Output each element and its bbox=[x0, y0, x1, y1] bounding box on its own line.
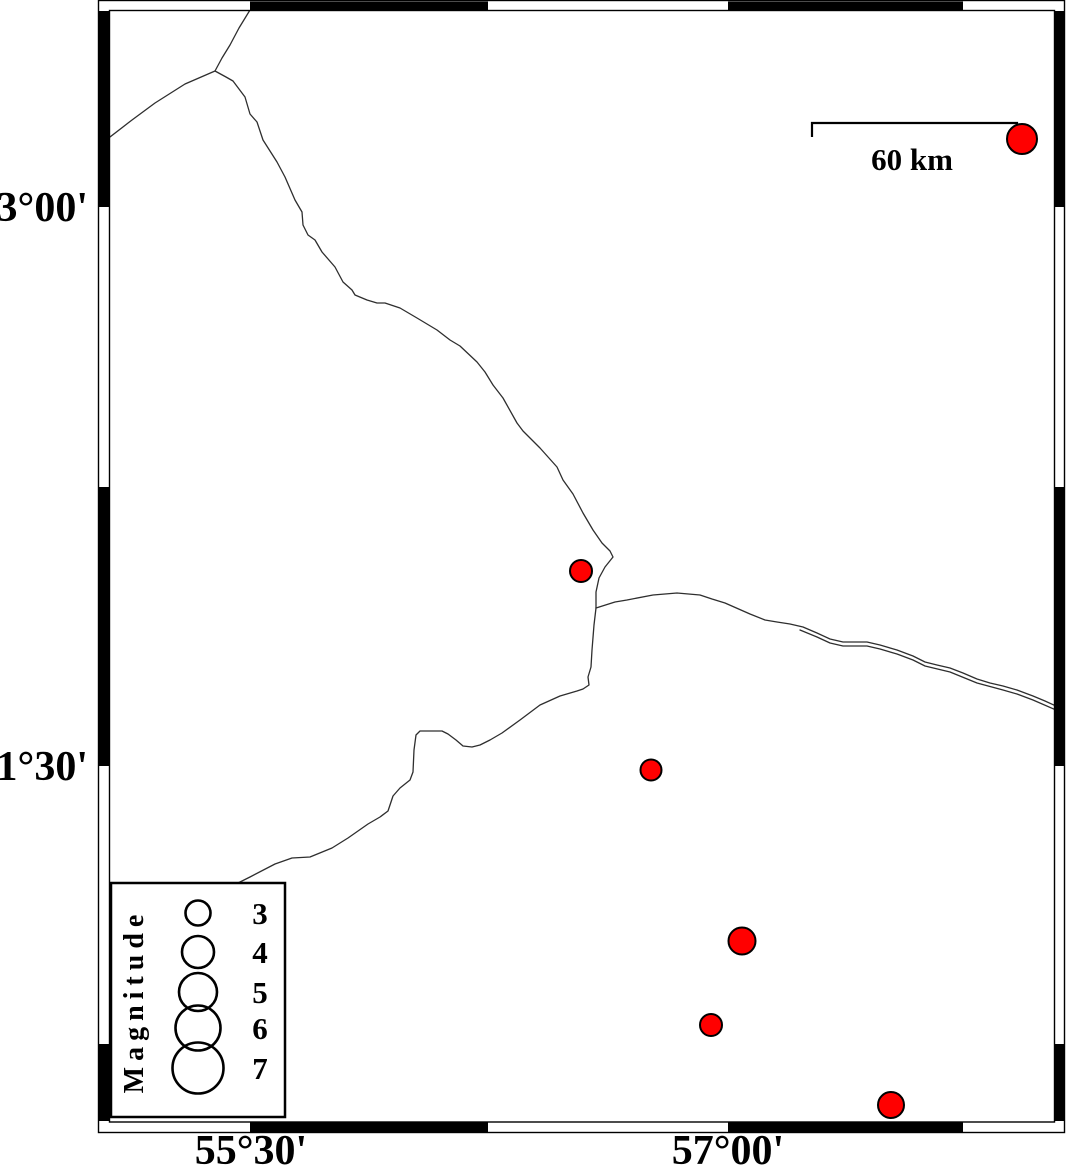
fault-northwest-branch bbox=[110, 71, 215, 137]
earthquake-marker bbox=[570, 560, 592, 582]
frame-segment-top bbox=[488, 2, 728, 11]
frame-segment-right bbox=[1055, 487, 1064, 766]
frame-segment-left bbox=[99, 11, 109, 207]
map-canvas: 60 km 34567 Magnitude 33°00'31°30'55°30'… bbox=[0, 0, 1066, 1169]
scale-bar-bracket bbox=[812, 123, 1017, 137]
frame-segment-left bbox=[99, 487, 109, 766]
latitude-annotation: 31°30' bbox=[0, 744, 88, 790]
magnitude-legend: 34567 Magnitude bbox=[111, 883, 285, 1117]
frame-segment-left bbox=[99, 1044, 109, 1121]
earthquake-marker bbox=[641, 760, 662, 781]
legend-magnitude-label: 7 bbox=[252, 1051, 268, 1086]
frame-segment-left bbox=[99, 766, 109, 1044]
frame-segment-top bbox=[110, 2, 250, 11]
scale-bar: 60 km bbox=[812, 123, 1017, 177]
earthquake-markers-layer bbox=[570, 124, 1037, 1118]
legend-magnitude-label: 3 bbox=[252, 896, 268, 931]
longitude-annotation: 57°00' bbox=[672, 1128, 784, 1169]
fault-east-road-lower bbox=[800, 630, 1056, 710]
earthquake-marker bbox=[1007, 124, 1037, 154]
fault-east-road-upper bbox=[596, 593, 1056, 706]
legend-magnitude-label: 5 bbox=[252, 975, 268, 1010]
legend-magnitude-label: 4 bbox=[252, 935, 268, 970]
frame-segment-right bbox=[1055, 207, 1064, 487]
seismicity-map-page: 60 km 34567 Magnitude 33°00'31°30'55°30'… bbox=[0, 0, 1066, 1169]
fault-lines-layer bbox=[110, 10, 1056, 883]
frame-segment-right bbox=[1055, 11, 1064, 207]
frame-segment-bottom bbox=[963, 1123, 1054, 1133]
legend-magnitude-label: 6 bbox=[252, 1011, 268, 1046]
frame-segment-right bbox=[1055, 766, 1064, 1044]
fault-north-main bbox=[215, 10, 613, 608]
earthquake-marker bbox=[878, 1092, 904, 1118]
earthquake-marker bbox=[700, 1014, 722, 1036]
legend-title: Magnitude bbox=[119, 909, 150, 1094]
frame-segment-left bbox=[99, 207, 109, 487]
frame-segment-right bbox=[1055, 1044, 1064, 1121]
latitude-annotation: 33°00' bbox=[0, 185, 88, 231]
frame-segment-top bbox=[250, 2, 488, 11]
scale-bar-label: 60 km bbox=[871, 142, 953, 177]
fault-southwest-main bbox=[238, 608, 596, 883]
longitude-annotation: 55°30' bbox=[195, 1128, 307, 1169]
earthquake-marker bbox=[729, 928, 756, 955]
frame-segment-top bbox=[963, 2, 1054, 11]
frame-segment-top bbox=[728, 2, 963, 11]
